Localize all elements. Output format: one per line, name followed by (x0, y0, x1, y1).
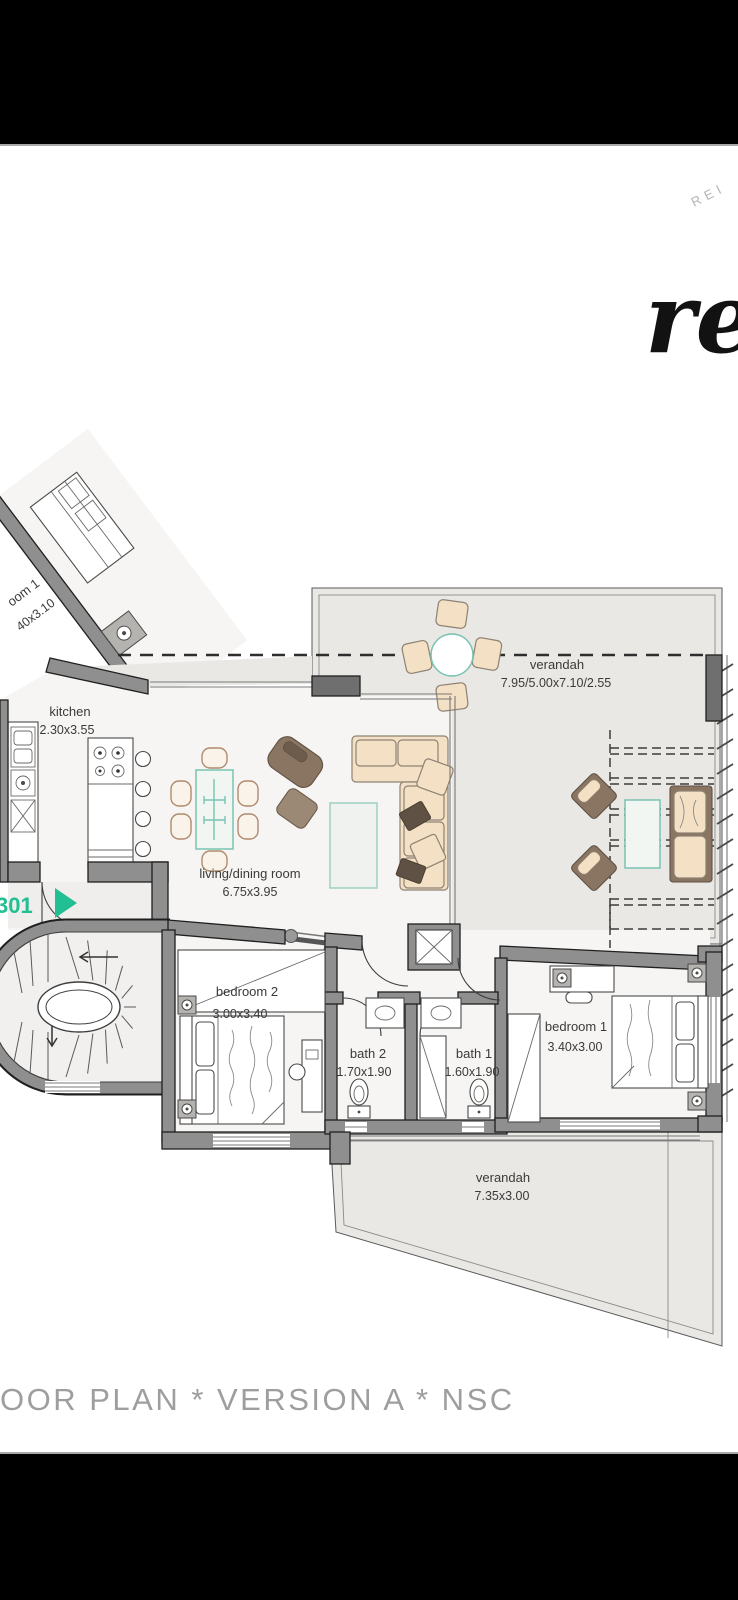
bedroom2-label: bedroom 2 (216, 984, 278, 999)
bedroom2-bath2-wall (325, 947, 337, 1132)
bath2-dims: 1.70x1.90 (337, 1065, 392, 1079)
pillow (196, 1022, 214, 1066)
unit-number: 301 (0, 893, 33, 918)
top-bar (0, 0, 738, 144)
kitchen-label: kitchen (49, 704, 90, 719)
dining-chair (202, 748, 227, 768)
script-watermark: re (645, 262, 738, 375)
bottom-bar (0, 1454, 738, 1600)
dining-chair (238, 814, 258, 839)
stairwell (0, 926, 170, 1093)
bottom-bar-edge (0, 1452, 738, 1454)
bedroom1-label: bedroom 1 (545, 1019, 607, 1034)
dining-chair (238, 781, 258, 806)
bath2-label: bath 2 (350, 1046, 386, 1061)
bath2-toilet (348, 1079, 370, 1118)
living-rug (330, 803, 377, 888)
left-exterior-wall (0, 700, 8, 882)
bath1-toilet (468, 1079, 490, 1118)
outdoor-chair (401, 640, 433, 675)
pillow (676, 1002, 694, 1040)
kitchen-dims: 2.30x3.55 (40, 723, 95, 737)
outdoor-sofa-cushion (674, 836, 706, 878)
bath2-bath1-wall (405, 995, 417, 1125)
bath1-label: bath 1 (456, 1046, 492, 1061)
bath1-dims: 1.60x1.90 (445, 1065, 500, 1079)
verandah-top-dims: 7.95/5.00x7.10/2.55 (501, 676, 612, 690)
bedroom1-dims: 3.40x3.00 (548, 1040, 603, 1054)
outdoor-chair (436, 682, 469, 711)
pillow (196, 1070, 214, 1114)
bedroom2-desk (302, 1040, 322, 1112)
verandah-bottom-label: verandah (476, 1170, 530, 1185)
dining-chair (171, 781, 191, 806)
living-dims: 6.75x3.95 (223, 885, 278, 899)
floor-plan-image: REI re oom 1 40x3.10 (0, 0, 738, 1600)
bath2-vanity (366, 998, 404, 1028)
verandah-top-label: verandah (530, 657, 584, 672)
desk-chair (566, 992, 592, 1003)
verandah-wall-pier (706, 655, 722, 721)
living-label: living/dining room (199, 866, 300, 881)
kitchen-counter (8, 722, 38, 868)
dining-chair (171, 814, 191, 839)
verandah-bottom-dims: 7.35x3.00 (475, 1189, 530, 1203)
bath1-vanity (421, 998, 461, 1028)
pillow (676, 1044, 694, 1082)
top-bar-edge (0, 144, 738, 146)
desk-chair (289, 1064, 305, 1080)
bedroom2-dims: 3.00x3.40 (213, 1007, 268, 1021)
round-table (431, 634, 473, 676)
outdoor-chair (435, 599, 468, 629)
floor-plan-caption: OOR PLAN * VERSION A * NSC (0, 1382, 515, 1417)
outdoor-coffee-table (625, 800, 660, 868)
stair-bedroom2-wall (162, 930, 175, 1142)
screenshot-canvas: REI re oom 1 40x3.10 (0, 0, 738, 1600)
wall-block (312, 676, 360, 696)
kitchen-island (88, 738, 133, 868)
bath1-bedroom1-wall (495, 958, 507, 1125)
outdoor-sofa-cushion (674, 791, 706, 833)
outdoor-chair (472, 637, 503, 671)
